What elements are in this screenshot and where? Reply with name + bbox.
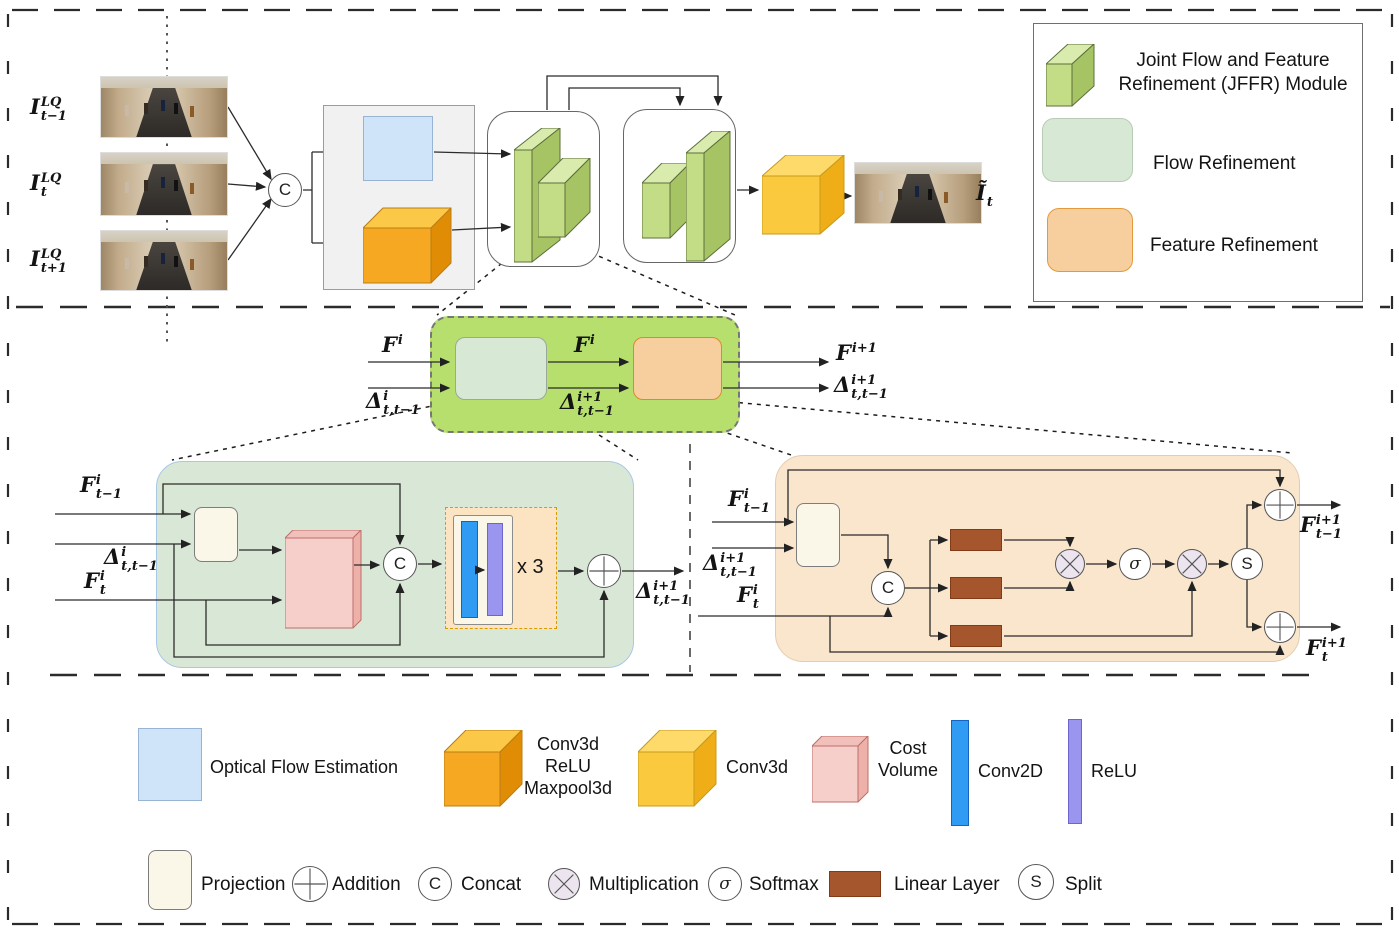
output-frame-image <box>854 162 982 224</box>
addition-icon <box>588 555 620 587</box>
label-jffr-mid-delta: Δi+1t,t−1 <box>560 391 614 418</box>
addition-icon <box>1265 490 1295 520</box>
legend-jffr-label-line2: Refinement (JFFR) Module <box>1110 74 1356 96</box>
legend-projection-swatch <box>148 850 192 910</box>
ff-linear-bar-2 <box>950 577 1002 599</box>
addition-icon <box>1265 612 1295 642</box>
conv3d-relu-maxpool-cube <box>363 205 452 284</box>
concat-symbol: C <box>429 874 441 894</box>
ff-concat-circle: C <box>871 571 905 605</box>
legend-cost-volume-label-line1: Cost <box>875 738 941 759</box>
ff-projection-block <box>796 503 840 567</box>
legend-addition-label: Addition <box>332 874 401 896</box>
softmax-symbol: σ <box>1129 554 1141 574</box>
feature-refinement-detail-box <box>775 455 1300 662</box>
fr-concat-circle: C <box>383 547 417 581</box>
legend-conv3d-label: Conv3d <box>726 757 788 778</box>
ff-multiplication-circle-2 <box>1177 549 1207 579</box>
label-jffr-in-delta: Δit,t−1 <box>366 390 420 417</box>
conv3d-output-cube <box>762 155 845 235</box>
legend-flow-refinement-swatch <box>1042 118 1133 182</box>
legend-concat-circle: C <box>418 867 452 901</box>
label-ff-in2: Δi+1t,t−1 <box>703 552 757 579</box>
concat-symbol: C <box>279 180 291 200</box>
softmax-symbol: σ <box>719 874 731 894</box>
multiplication-icon <box>1056 550 1084 578</box>
jffr-slab-2b <box>686 131 731 262</box>
label-ff-in3: Fit <box>737 584 759 611</box>
ff-concat-symbol: C <box>882 578 894 598</box>
ff-addition-circle-bottom <box>1264 611 1296 643</box>
legend-linear-layer-label: Linear Layer <box>894 874 1000 896</box>
optical-flow-block <box>363 116 433 181</box>
legend-conv3d-relu-label-line1: Conv3d <box>515 734 621 755</box>
split-symbol: S <box>1241 554 1252 574</box>
fr-cost-volume-block <box>285 530 362 629</box>
legend-projection-label: Projection <box>201 874 286 896</box>
legend-softmax-circle: σ <box>708 867 742 901</box>
fr-projection-block <box>194 507 238 562</box>
concat-circle-top: C <box>268 173 302 207</box>
input-frame-next-image <box>100 230 228 291</box>
multiplication-icon <box>1178 550 1206 578</box>
label-fr-in3: Fit <box>84 570 106 597</box>
legend-relu-label: ReLU <box>1091 761 1137 782</box>
legend-softmax-label: Softmax <box>749 874 819 896</box>
legend-optical-flow-label: Optical Flow Estimation <box>210 757 398 778</box>
legend-cost-volume-block <box>812 736 869 803</box>
fr-repeat-label: x 3 <box>517 556 544 579</box>
legend-split-circle: S <box>1018 864 1054 900</box>
label-jffr-mid-f: Fi <box>574 334 595 361</box>
label-input-frame-prev: ILQt−1 <box>30 96 67 123</box>
legend-conv3d-relu-maxpool-cube <box>444 730 523 807</box>
label-fr-out: Δi+1t,t−1 <box>636 580 690 607</box>
label-fr-in2: Δit,t−1 <box>104 546 158 573</box>
legend-concat-label: Concat <box>461 874 521 896</box>
legend-conv3d-relu-label-line2: ReLU <box>515 756 621 777</box>
fr-conv2d-bar <box>461 521 478 618</box>
legend-multiplication-circle <box>548 868 580 900</box>
label-jffr-out-delta: Δi+1t,t−1 <box>834 374 888 401</box>
label-jffr-out-f: Fi+1 <box>836 342 877 369</box>
label-output-frame: Ĩ t <box>976 182 993 209</box>
label-input-frame-next: ILQt+1 <box>30 248 67 275</box>
ff-linear-bar-1 <box>950 529 1002 551</box>
legend-feature-refinement-label: Feature Refinement <box>1150 235 1318 257</box>
label-input-frame-current: ILQt <box>30 172 61 199</box>
architecture-figure: ILQt−1 ILQt ILQt+1 C <box>0 0 1399 933</box>
ff-softmax-circle: σ <box>1119 548 1151 580</box>
legend-multiplication-label: Multiplication <box>589 874 699 896</box>
input-frame-current-image <box>100 152 228 216</box>
ff-addition-circle-top <box>1264 489 1296 521</box>
legend-conv3d-relu-label-line3: Maxpool3d <box>515 778 621 799</box>
legend-conv2d-bar <box>951 720 969 826</box>
addition-icon <box>293 867 327 901</box>
label-fr-in1: Fit−1 <box>80 474 122 501</box>
legend-relu-bar <box>1068 719 1082 824</box>
ff-split-circle: S <box>1231 548 1263 580</box>
legend-split-label: Split <box>1065 874 1102 896</box>
legend-linear-layer-swatch <box>829 871 881 897</box>
label-ff-in1: Fit−1 <box>728 488 770 515</box>
legend-feature-refinement-swatch <box>1047 208 1133 272</box>
legend-flow-refinement-label: Flow Refinement <box>1153 153 1296 175</box>
legend-jffr-label-line1: Joint Flow and Feature <box>1110 50 1356 72</box>
label-ff-out1: Fi+1t−1 <box>1300 514 1342 541</box>
fr-addition-circle <box>587 554 621 588</box>
label-jffr-in-f: Fi <box>382 334 403 361</box>
jffr-slab-1b <box>538 158 591 238</box>
multiplication-icon <box>549 869 579 899</box>
legend-conv3d-cube <box>638 730 717 807</box>
legend-cost-volume-label-line2: Volume <box>875 760 941 781</box>
label-ff-out2: Fi+1t <box>1306 637 1347 664</box>
legend-optical-flow-swatch <box>138 728 202 801</box>
legend-conv2d-label: Conv2D <box>978 761 1043 782</box>
jffr-flow-refinement-block <box>455 337 547 400</box>
input-frame-prev-image <box>100 76 228 138</box>
legend-addition-circle <box>292 866 328 902</box>
fr-relu-bar <box>487 523 503 616</box>
ff-multiplication-circle-1 <box>1055 549 1085 579</box>
jffr-feature-refinement-block <box>633 337 722 400</box>
fr-concat-symbol: C <box>394 554 406 574</box>
split-symbol: S <box>1030 872 1041 892</box>
ff-linear-bar-3 <box>950 625 1002 647</box>
jffr-module-legend-cuboid <box>1046 44 1095 107</box>
jffr-slab-2a <box>642 163 691 239</box>
